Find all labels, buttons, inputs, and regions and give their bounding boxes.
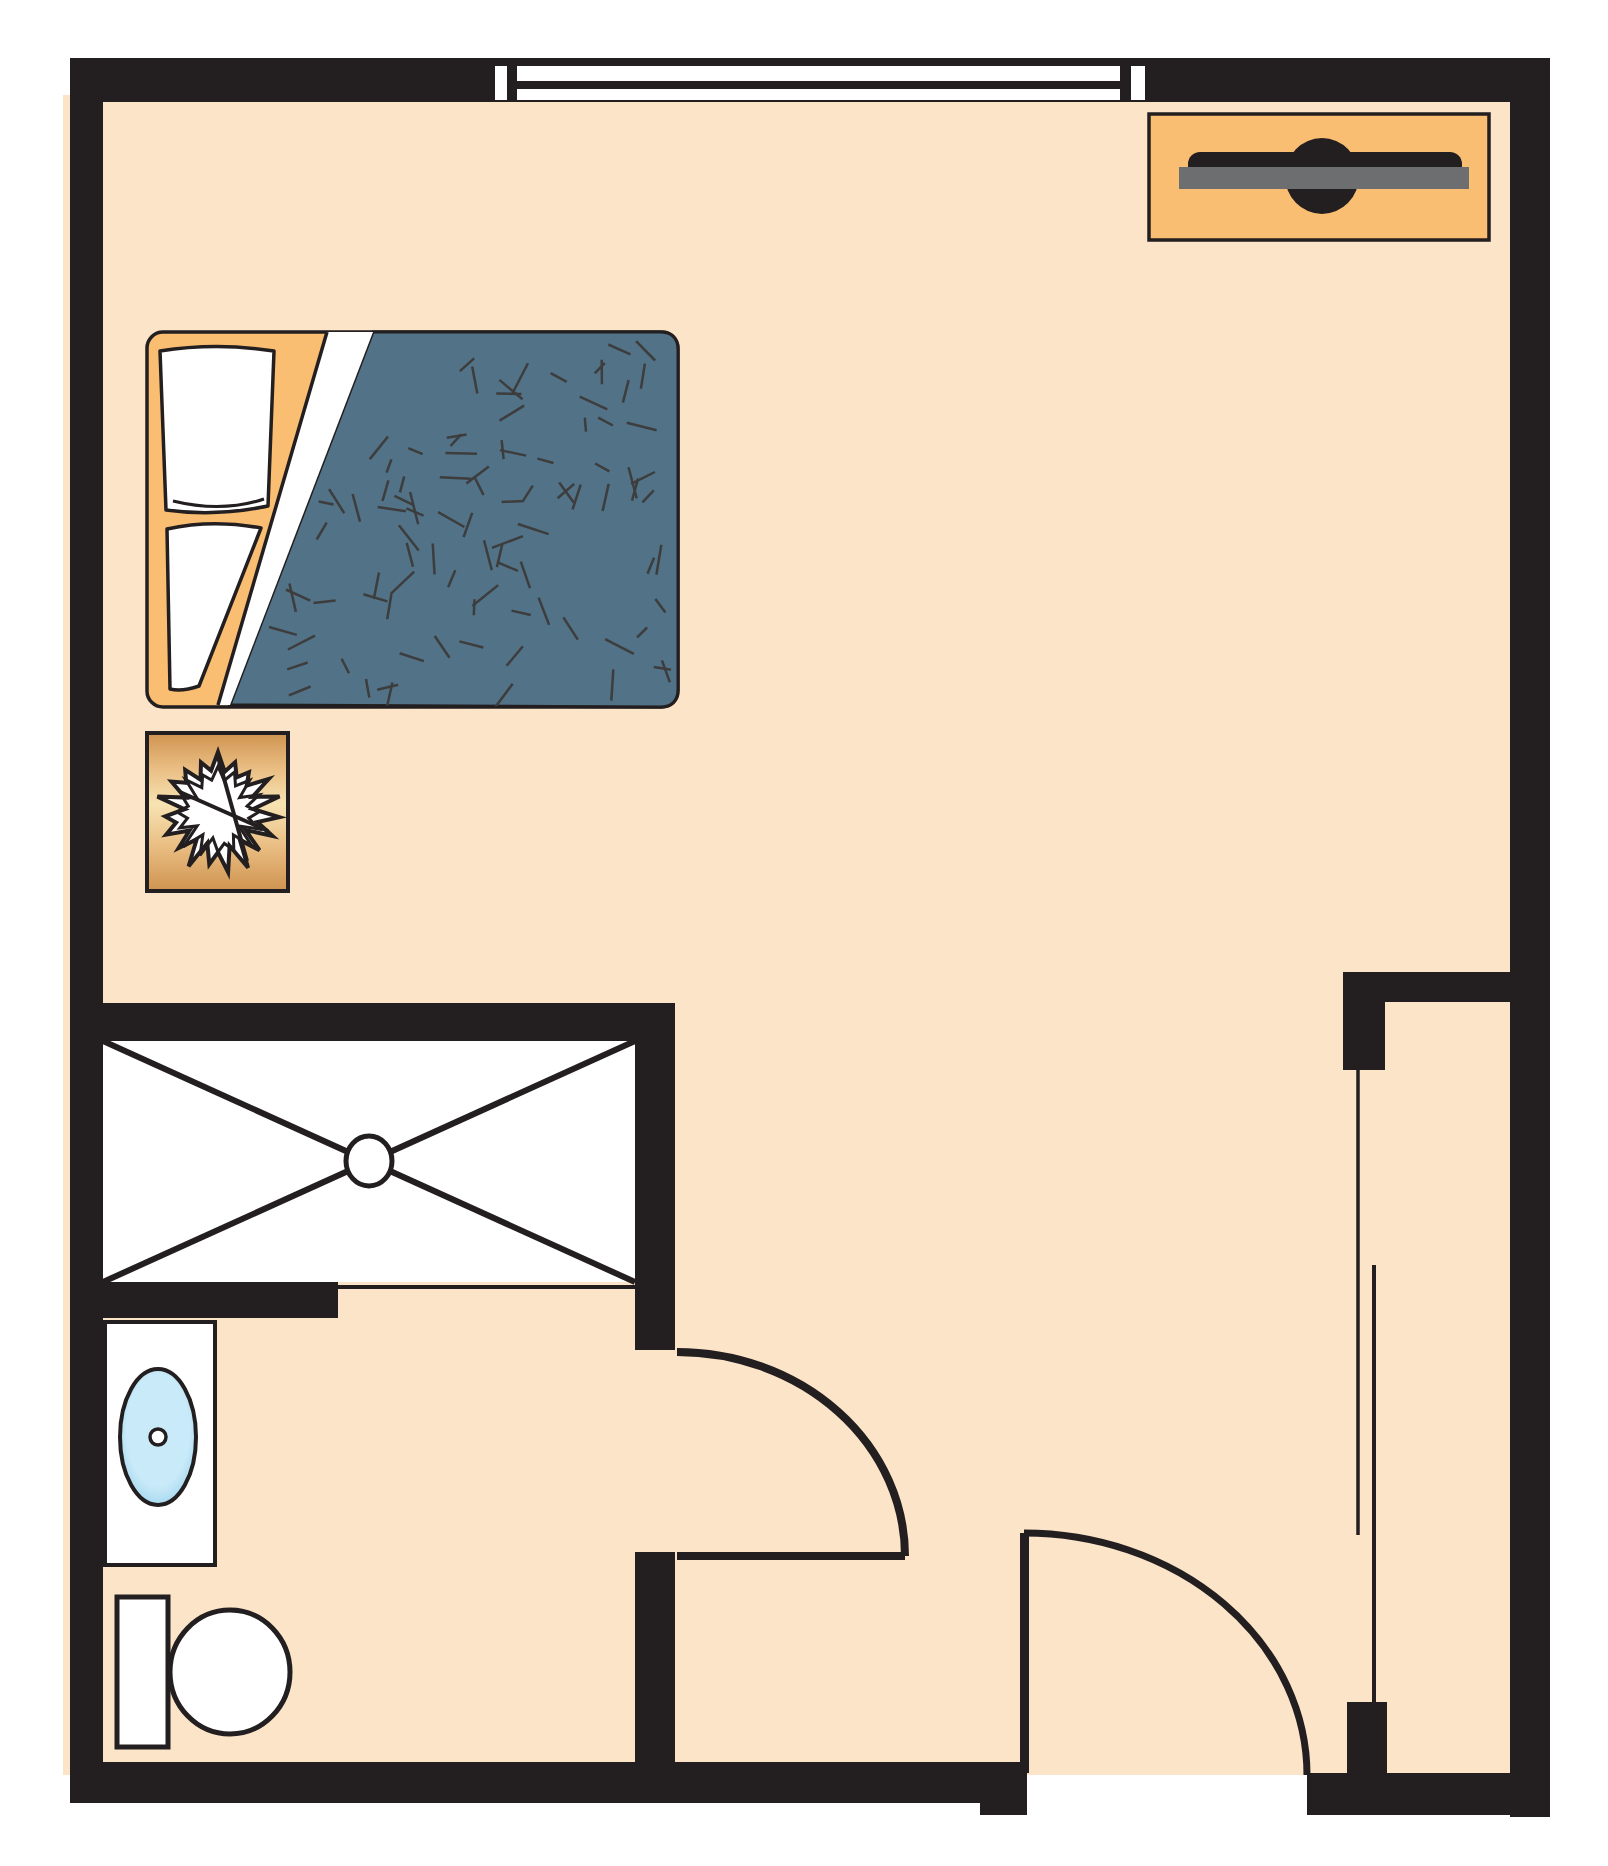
- wall-bathroom-right: [635, 1041, 675, 1350]
- window-center-mullion: [517, 81, 1120, 89]
- wall-shower-bottom: [103, 1277, 338, 1318]
- entry-door-leaf: [1020, 1533, 1029, 1773]
- blanket-dash: [585, 418, 586, 432]
- toilet: [117, 1597, 290, 1747]
- wall-bottom-right: [1307, 1773, 1550, 1815]
- tv-shelf-bar: [1179, 167, 1469, 189]
- wall-closet-bottom-stub: [1347, 1702, 1387, 1773]
- blanket-dash: [440, 477, 471, 479]
- window: [495, 66, 1145, 100]
- wall-bathroom-top: [103, 1003, 675, 1041]
- vanity: [105, 1322, 215, 1565]
- window-end-slot-left: [495, 66, 507, 100]
- nightstand: [147, 733, 288, 891]
- tv-console: [1149, 114, 1489, 240]
- bed: [147, 332, 678, 708]
- toilet-tank: [117, 1597, 168, 1747]
- blanket-dash: [502, 501, 525, 502]
- wall-left: [70, 58, 103, 1803]
- wall-bathroom-door-stub: [635, 1552, 675, 1762]
- window-end-slot-right: [1131, 66, 1145, 100]
- floor-plan-page: [0, 0, 1608, 1866]
- entry-door-jamb-left: [980, 1762, 1027, 1815]
- wall-closet-top-vertical: [1343, 972, 1385, 1070]
- pillow-top: [160, 347, 274, 513]
- shower: [103, 1041, 635, 1287]
- shower-drain: [346, 1136, 392, 1186]
- floor-plan-canvas: [0, 0, 1608, 1866]
- sink-drain: [150, 1429, 166, 1445]
- wall-bottom-left: [70, 1762, 1027, 1803]
- wall-right: [1510, 58, 1550, 1817]
- blanket-dash: [474, 599, 475, 615]
- toilet-bowl: [170, 1610, 290, 1734]
- blanket-dash: [445, 453, 477, 454]
- wall-closet-top-horizontal: [1385, 972, 1510, 1002]
